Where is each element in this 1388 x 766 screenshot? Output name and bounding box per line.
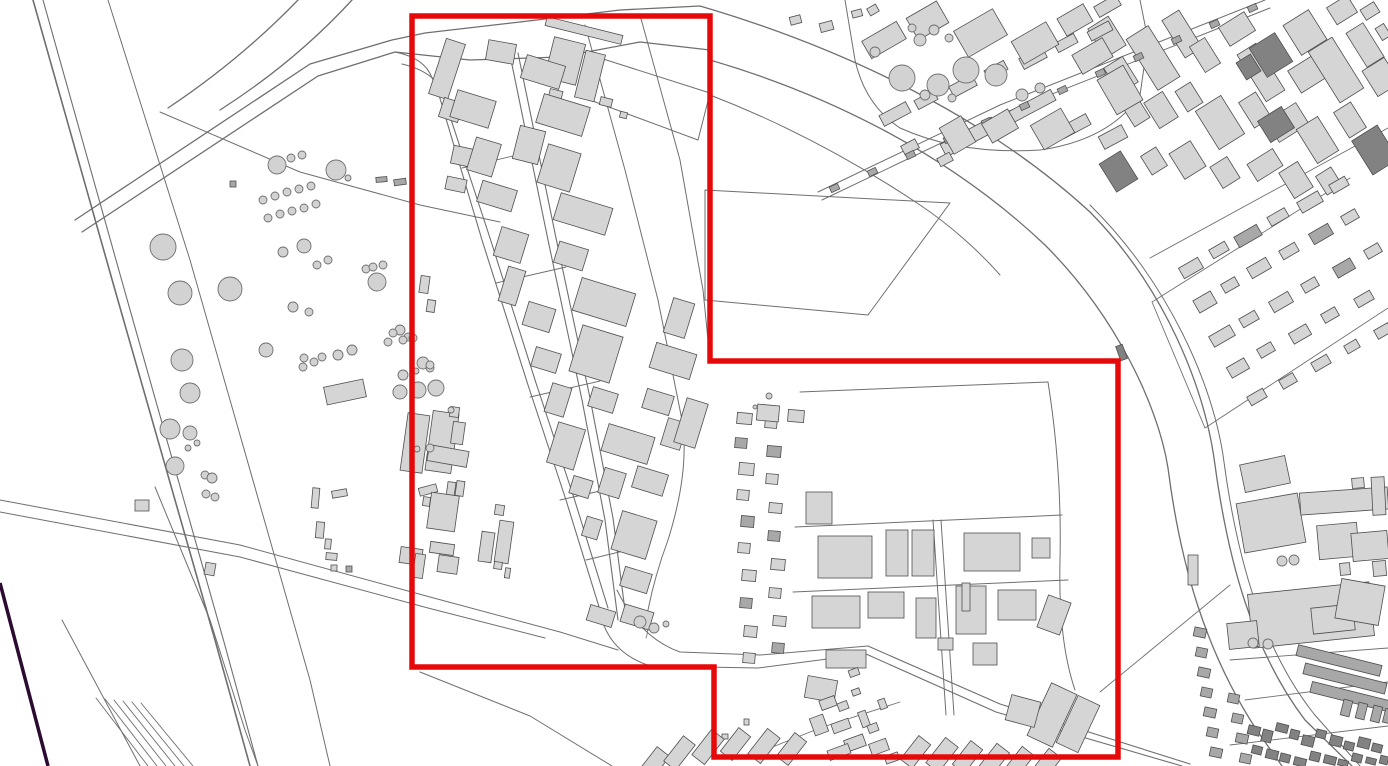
map-background — [0, 0, 1388, 766]
site-map — [0, 0, 1388, 766]
map-canvas — [0, 0, 1388, 766]
